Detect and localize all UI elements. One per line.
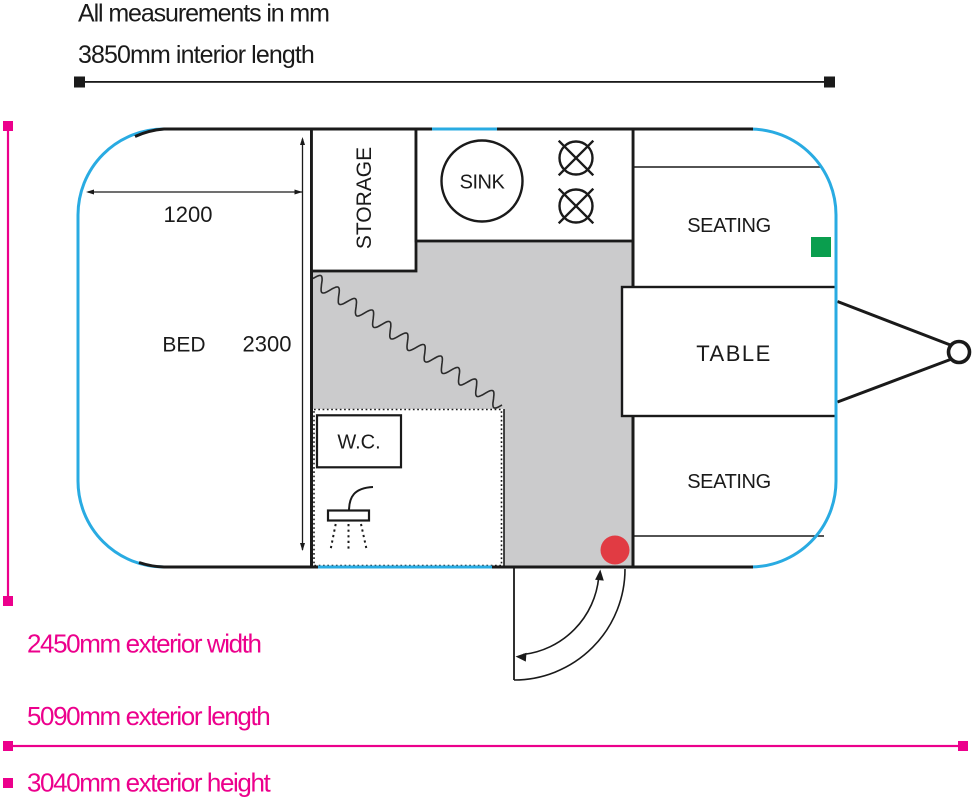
svg-text:W.C.: W.C.	[337, 432, 380, 454]
svg-text:STORAGE: STORAGE	[353, 147, 376, 249]
svg-text:1200: 1200	[164, 202, 213, 227]
svg-text:5090mm exterior length: 5090mm exterior length	[27, 701, 269, 731]
svg-text:2300: 2300	[243, 332, 292, 357]
svg-text:SEATING: SEATING	[687, 215, 771, 237]
svg-text:3850mm interior length: 3850mm interior length	[78, 41, 314, 69]
svg-text:2450mm exterior width: 2450mm exterior width	[27, 629, 261, 659]
svg-text:All measurements in mm: All measurements in mm	[78, 0, 329, 28]
svg-text:TABLE: TABLE	[696, 341, 772, 366]
svg-text:SINK: SINK	[460, 172, 506, 194]
svg-text:SEATING: SEATING	[687, 471, 771, 493]
svg-text:3040mm exterior height: 3040mm exterior height	[27, 768, 272, 797]
svg-text:BED: BED	[162, 334, 205, 357]
